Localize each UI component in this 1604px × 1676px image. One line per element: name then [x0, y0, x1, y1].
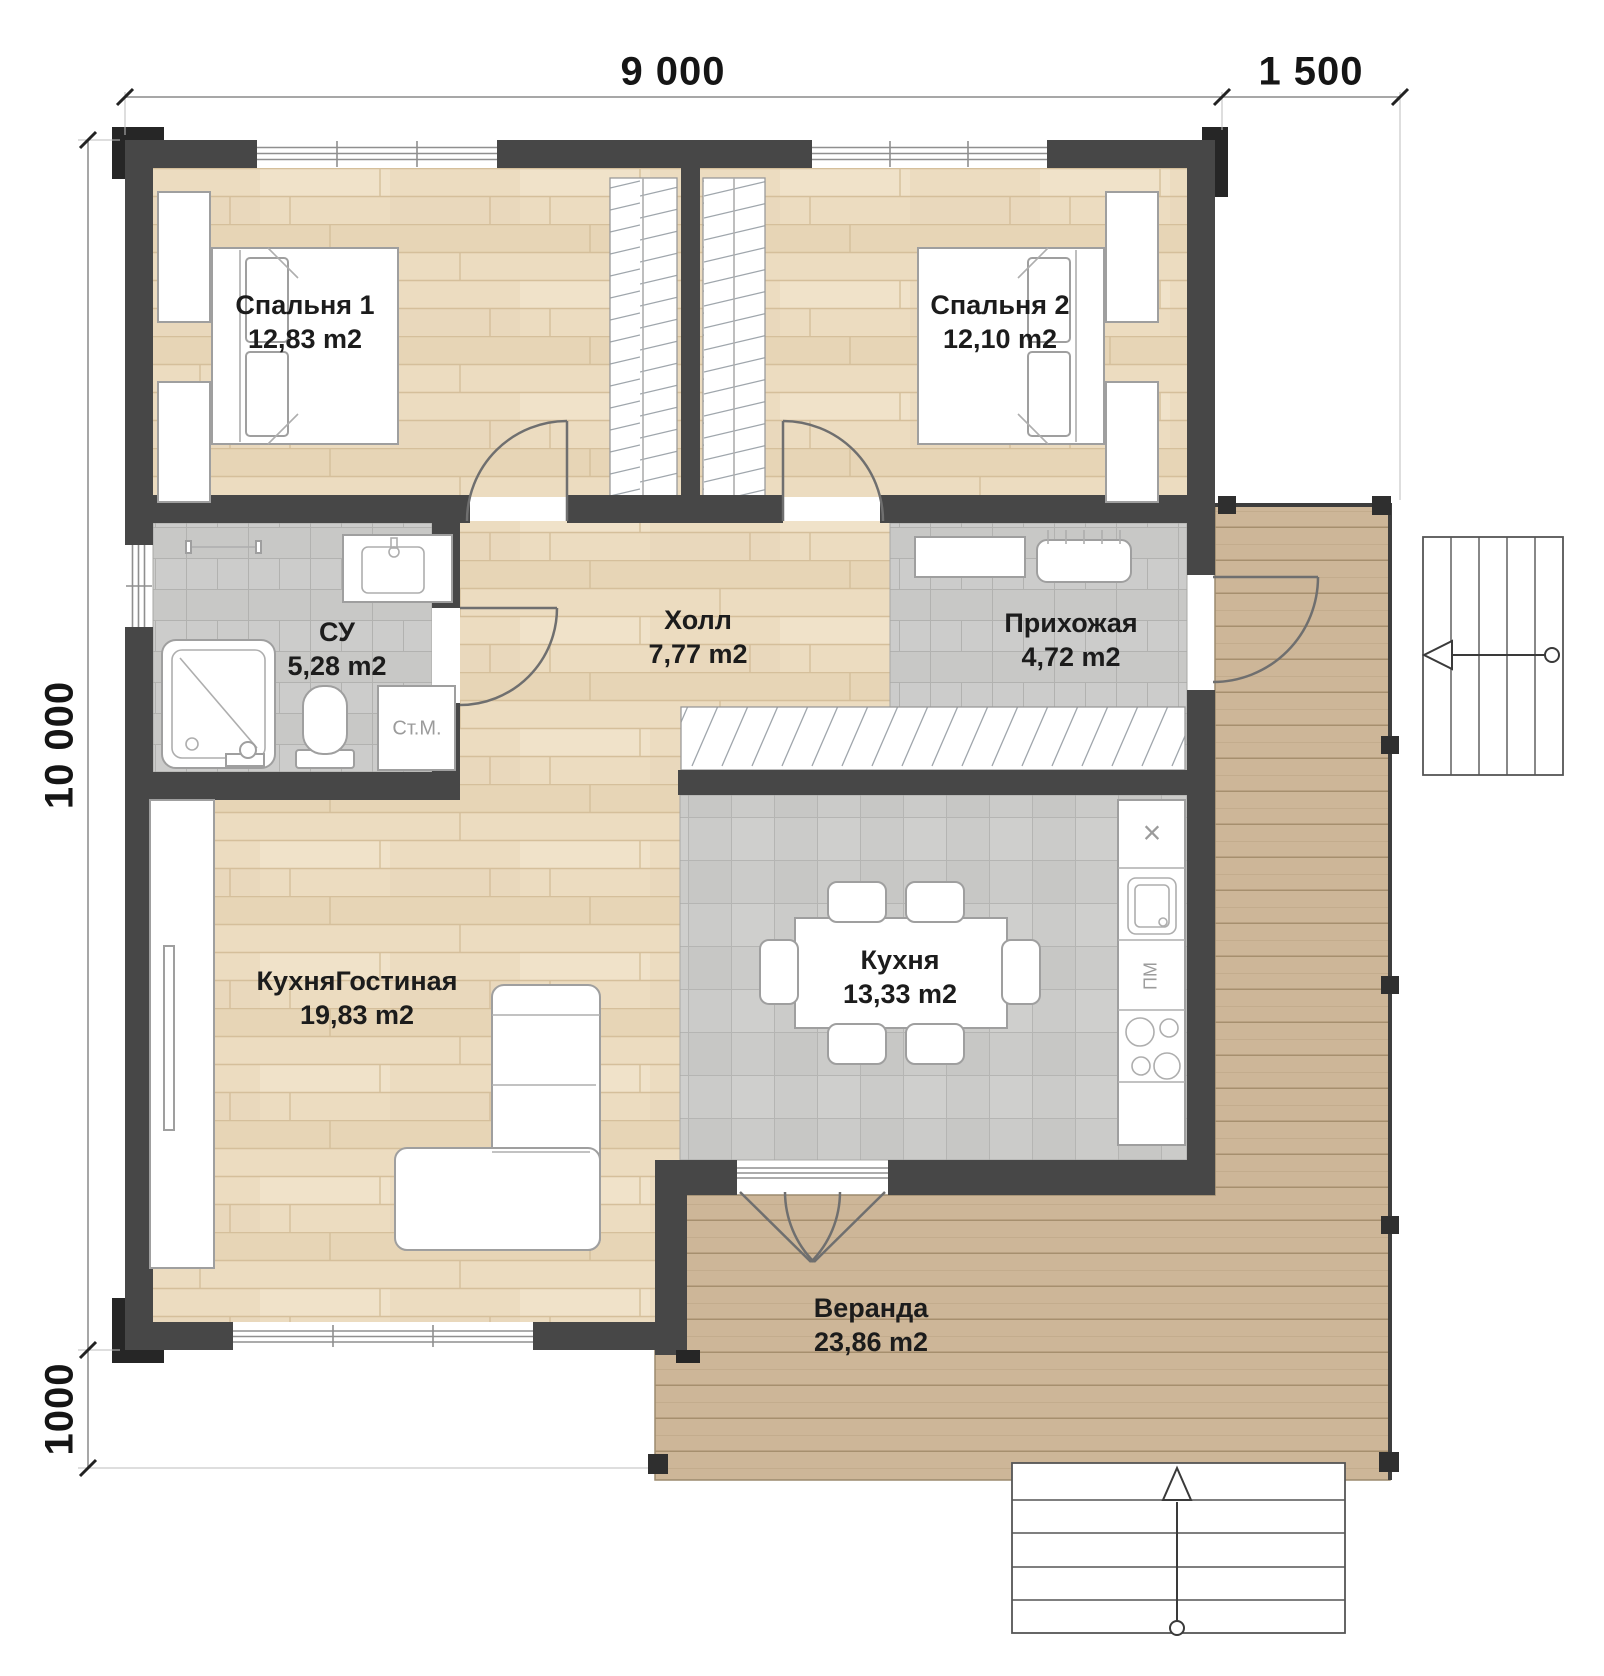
- pillow: [1028, 352, 1070, 436]
- dim-width-porch: 1 500: [1258, 50, 1363, 95]
- room-area: 4,72 m2: [1004, 640, 1137, 674]
- dim-height-main: 10 000: [38, 681, 83, 809]
- window-bathroom: [126, 545, 152, 627]
- chair: [906, 882, 964, 922]
- pillow: [246, 352, 288, 436]
- chair: [760, 940, 798, 1004]
- room-label-living: КухняГостиная 19,83 m2: [257, 964, 458, 1032]
- chair: [828, 1024, 886, 1064]
- room-area: 12,10 m2: [930, 322, 1069, 356]
- room-label-hall: Холл 7,77 m2: [648, 603, 747, 671]
- room-label-veranda: Веранда 23,86 m2: [814, 1291, 929, 1359]
- stairs-bottom: [1012, 1463, 1345, 1635]
- chair: [828, 882, 886, 922]
- room-name: Прихожая: [1004, 606, 1137, 640]
- room-label-entry: Прихожая 4,72 m2: [1004, 606, 1137, 674]
- room-label-kitchen: Кухня 13,33 m2: [843, 943, 957, 1011]
- wardrobe-entry: [681, 707, 1185, 770]
- room-label-bedroom1: Спальня 1 12,83 m2: [235, 288, 374, 356]
- room-name: Кухня: [843, 943, 957, 977]
- room-area: 7,77 m2: [648, 637, 747, 671]
- entry-door-opening: [1189, 575, 1213, 690]
- toilet-bowl: [303, 686, 347, 754]
- stairs-right: [1423, 537, 1563, 775]
- room-area: 12,83 m2: [235, 322, 374, 356]
- room-area: 19,83 m2: [257, 998, 458, 1032]
- room-area: 13,33 m2: [843, 977, 957, 1011]
- washing-machine-label: Ст.М.: [392, 718, 441, 741]
- tv-unit: [150, 800, 214, 1268]
- nightstand: [1106, 382, 1158, 502]
- room-name: Холл: [648, 603, 747, 637]
- french-door-sill: [737, 1162, 888, 1182]
- bench: [1037, 540, 1131, 582]
- window-living: [233, 1325, 533, 1347]
- room-label-bathroom: СУ 5,28 m2: [287, 615, 386, 683]
- dim-width-main: 9 000: [620, 50, 725, 95]
- nightstand: [158, 382, 210, 502]
- room-name: СУ: [287, 615, 386, 649]
- bedroom1-door-opening: [470, 497, 567, 521]
- dishwasher-label: ПМ: [1141, 962, 1162, 990]
- fridge-x-icon: ×: [1143, 815, 1162, 852]
- nightstand: [158, 192, 210, 322]
- room-name: Веранда: [814, 1291, 929, 1325]
- room-name: КухняГостиная: [257, 964, 458, 998]
- floor-plan-page: 9 000 1 500 10 000 1000 Спальня 1 12,83 …: [0, 0, 1604, 1676]
- sofa-chaise: [395, 1148, 600, 1250]
- nightstand: [1106, 192, 1158, 322]
- shoe-cabinet: [915, 537, 1025, 577]
- room-label-bedroom2: Спальня 2 12,10 m2: [930, 288, 1069, 356]
- tv: [164, 946, 174, 1130]
- bedroom2-door-opening: [783, 497, 880, 521]
- dim-height-deck: 1000: [38, 1363, 83, 1456]
- room-area: 23,86 m2: [814, 1325, 929, 1359]
- room-name: Спальня 2: [930, 288, 1069, 322]
- window-bedroom1: [257, 141, 497, 167]
- room-name: Спальня 1: [235, 288, 374, 322]
- window-bedroom2: [812, 141, 1047, 167]
- room-area: 5,28 m2: [287, 649, 386, 683]
- chair: [1002, 940, 1040, 1004]
- chair: [906, 1024, 964, 1064]
- floor-plan-drawing: [0, 0, 1604, 1676]
